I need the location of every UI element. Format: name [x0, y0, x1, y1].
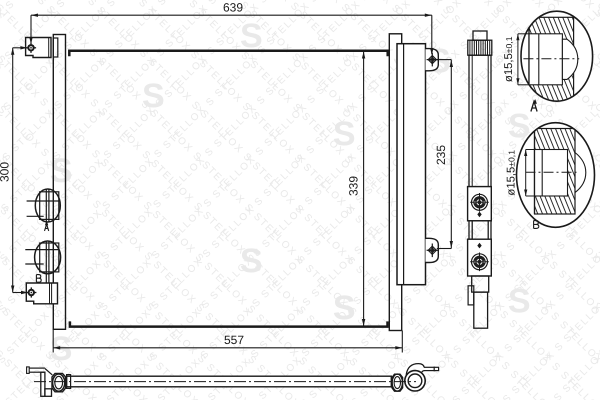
- svg-text:S: S: [333, 289, 356, 327]
- svg-text:ø15,5±0,1: ø15,5±0,1: [506, 150, 518, 196]
- svg-text:557: 557: [224, 333, 244, 347]
- svg-text:235: 235: [434, 145, 448, 165]
- svg-text:339: 339: [347, 176, 361, 196]
- svg-text:S: S: [333, 115, 356, 153]
- svg-text:S: S: [240, 17, 263, 55]
- svg-text:S: S: [142, 77, 165, 115]
- svg-text:S: S: [240, 242, 263, 280]
- svg-text:639: 639: [223, 0, 243, 14]
- svg-text:300: 300: [0, 162, 11, 182]
- svg-text:ø15,5±0,1: ø15,5±0,1: [503, 36, 515, 82]
- svg-text:S: S: [508, 282, 531, 320]
